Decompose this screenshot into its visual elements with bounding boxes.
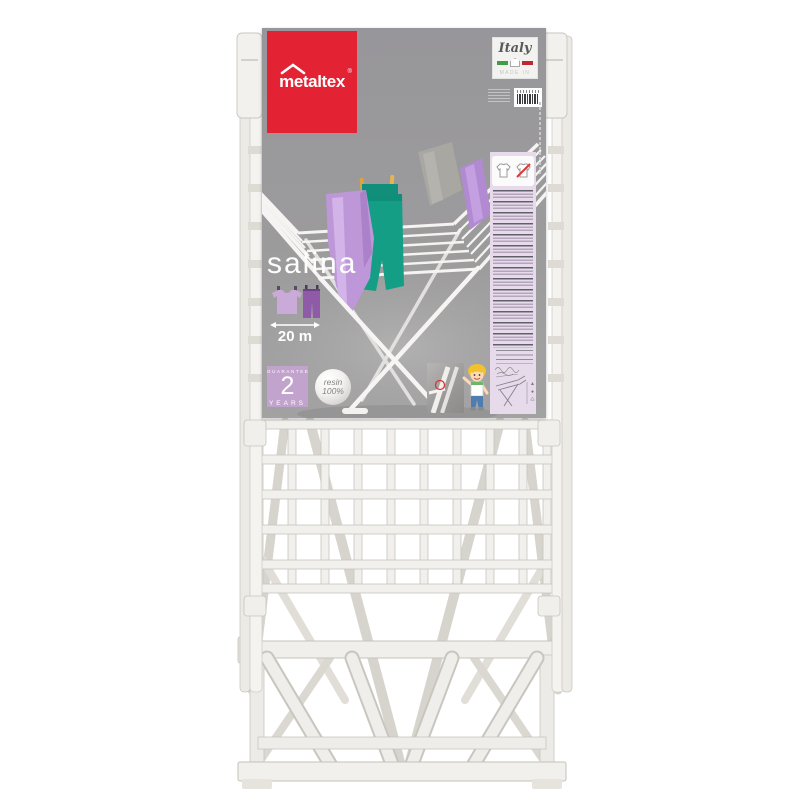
inset-rack-closeup — [427, 363, 464, 413]
child-shoe-right — [478, 407, 484, 411]
barcode-digits — [517, 90, 539, 93]
child-warning-illustration — [461, 363, 493, 415]
guarantee-years-number: 2 — [267, 374, 308, 399]
care-instructions-microtext — [493, 190, 533, 348]
rack-middle-bar — [238, 637, 566, 663]
care-instructions-rtl-microtext — [496, 350, 533, 364]
flag-green — [497, 61, 508, 65]
barcode-block — [488, 88, 540, 106]
shirt-icon — [272, 286, 302, 314]
product-name: salina — [267, 249, 357, 279]
rack-lattice-grid — [250, 420, 562, 593]
italy-script-text: Italy — [492, 42, 538, 55]
resin-badge: resin 100% — [315, 369, 351, 405]
guarantee-years-label: YEARS — [267, 400, 308, 407]
made-in-text: MADE IN — [492, 70, 538, 76]
tshirt-icon — [495, 163, 512, 179]
flag-red — [522, 61, 533, 65]
packaging-label: metaltex ® Italy MADE IN — [262, 28, 546, 418]
made-in-italy-badge: Italy MADE IN — [492, 37, 538, 79]
pants-icon — [303, 285, 320, 318]
edge-microtext — [539, 102, 541, 174]
rack-foot-left — [242, 779, 272, 789]
product-photo-scene: { "scene": {"background": "#ffffff", "su… — [0, 0, 800, 800]
barcode — [514, 88, 542, 107]
laundry-pictogram-box — [492, 156, 534, 186]
child-shoe-left — [470, 407, 476, 411]
barcode-bars — [517, 94, 539, 104]
resin-percent: 100% — [322, 387, 344, 396]
roof-icon — [280, 63, 310, 75]
rack-line-drawing — [492, 374, 530, 408]
instruction-panel: ▲●♺ — [490, 152, 536, 414]
child-jeans — [471, 396, 483, 407]
rack-top-cap-left — [237, 33, 262, 118]
guarantee-badge: GUARANTEE 2 YEARS — [267, 366, 308, 407]
barcode-caption-lines — [488, 89, 510, 104]
detail-inset-photo — [427, 363, 464, 413]
recycling-marks: ▲●♺ — [530, 380, 535, 410]
brand-logo: metaltex ® — [267, 31, 357, 133]
registered-mark: ® — [347, 69, 351, 75]
italian-flag-icon — [492, 58, 538, 67]
hanging-clothes-icon — [268, 284, 326, 324]
tshirt-crossed-icon — [515, 163, 532, 179]
drying-length: 20 m — [270, 328, 320, 345]
rack-foot-right — [532, 779, 562, 789]
photo-foot-left — [342, 408, 368, 414]
flag-house — [510, 58, 520, 67]
child-shirt-collar — [471, 382, 483, 385]
